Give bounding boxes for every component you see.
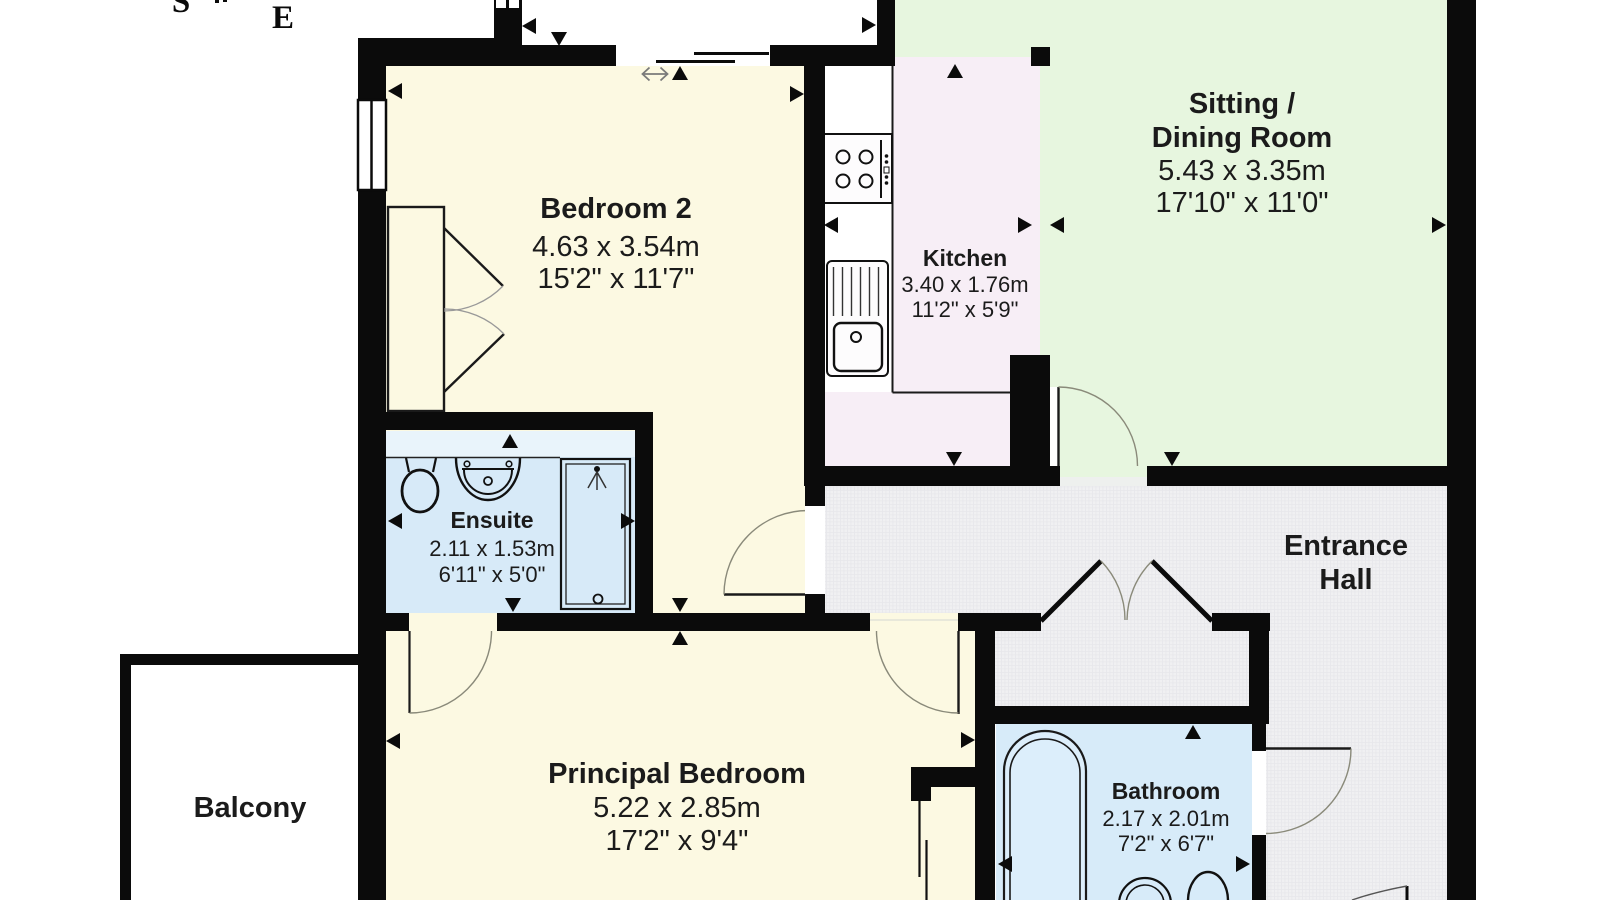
svg-text:Bedroom 2: Bedroom 2 [540,193,691,225]
svg-text:Entrance: Entrance [1284,530,1408,562]
svg-text:Ensuite: Ensuite [450,507,533,533]
svg-text:3.40 x 1.76m: 3.40 x 1.76m [901,272,1028,297]
svg-text:Bathroom: Bathroom [1112,778,1221,804]
svg-text:15'2" x 11'7": 15'2" x 11'7" [538,263,695,295]
svg-text:E: E [272,0,294,36]
svg-text:2.17 x 2.01m: 2.17 x 2.01m [1102,806,1229,831]
svg-text:7'2" x 6'7": 7'2" x 6'7" [1118,831,1214,856]
svg-text:5.43 x 3.35m: 5.43 x 3.35m [1158,155,1326,187]
svg-text:6'11" x 5'0": 6'11" x 5'0" [439,562,546,587]
svg-text:2.11 x 1.53m: 2.11 x 1.53m [429,536,555,561]
svg-text:11'2" x 5'9": 11'2" x 5'9" [912,297,1019,322]
svg-text:Kitchen: Kitchen [923,245,1007,271]
svg-text:5.22 x 2.85m: 5.22 x 2.85m [593,792,761,824]
svg-text:4.63 x 3.54m: 4.63 x 3.54m [532,231,700,263]
svg-text:S: S [172,0,190,20]
svg-text:Principal Bedroom: Principal Bedroom [548,758,806,790]
svg-text:17'2" x 9'4": 17'2" x 9'4" [606,825,749,857]
svg-text:Dining Room: Dining Room [1152,122,1332,154]
svg-text:Sitting /: Sitting / [1189,88,1295,120]
svg-text:17'10" x 11'0": 17'10" x 11'0" [1155,187,1328,219]
svg-text:Hall: Hall [1319,564,1372,596]
svg-text:Balcony: Balcony [194,792,307,824]
